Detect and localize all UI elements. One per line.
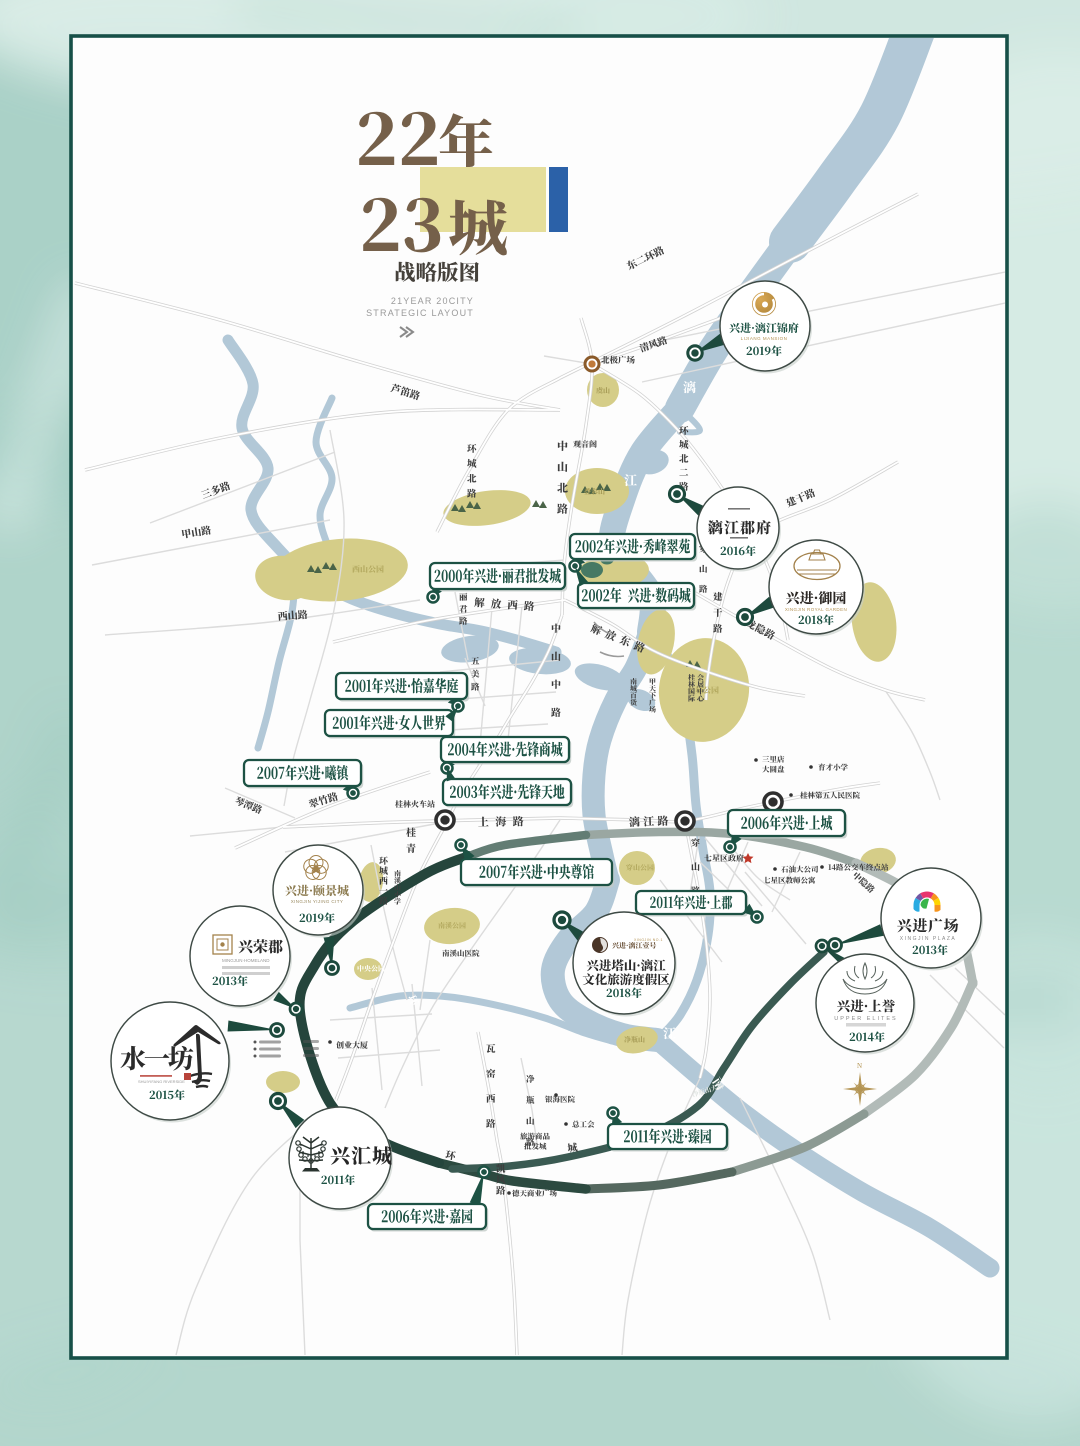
- svg-text:LIJIANG MANSION: LIJIANG MANSION: [741, 336, 788, 341]
- svg-text:UPPER ELITES: UPPER ELITES: [834, 1016, 897, 1022]
- svg-text:MINGJUN·HOMELAND: MINGJUN·HOMELAND: [222, 958, 270, 963]
- svg-text:XINGJIN ROYAL GARDEN: XINGJIN ROYAL GARDEN: [785, 607, 847, 612]
- svg-text:SHUIYIFANG RIVERSIDE: SHUIYIFANG RIVERSIDE: [138, 1079, 185, 1084]
- svg-text:XINGJIN YIJING CITY: XINGJIN YIJING CITY: [291, 899, 344, 904]
- svg-text:XINGJIN NO.1: XINGJIN NO.1: [634, 938, 663, 942]
- svg-text:N: N: [857, 1062, 862, 1070]
- svg-text:STRATEGIC LAYOUT: STRATEGIC LAYOUT: [366, 308, 474, 318]
- svg-text:XINGJIN PLAZA: XINGJIN PLAZA: [900, 936, 956, 942]
- svg-text:21YEAR 20CITY: 21YEAR 20CITY: [391, 296, 474, 306]
